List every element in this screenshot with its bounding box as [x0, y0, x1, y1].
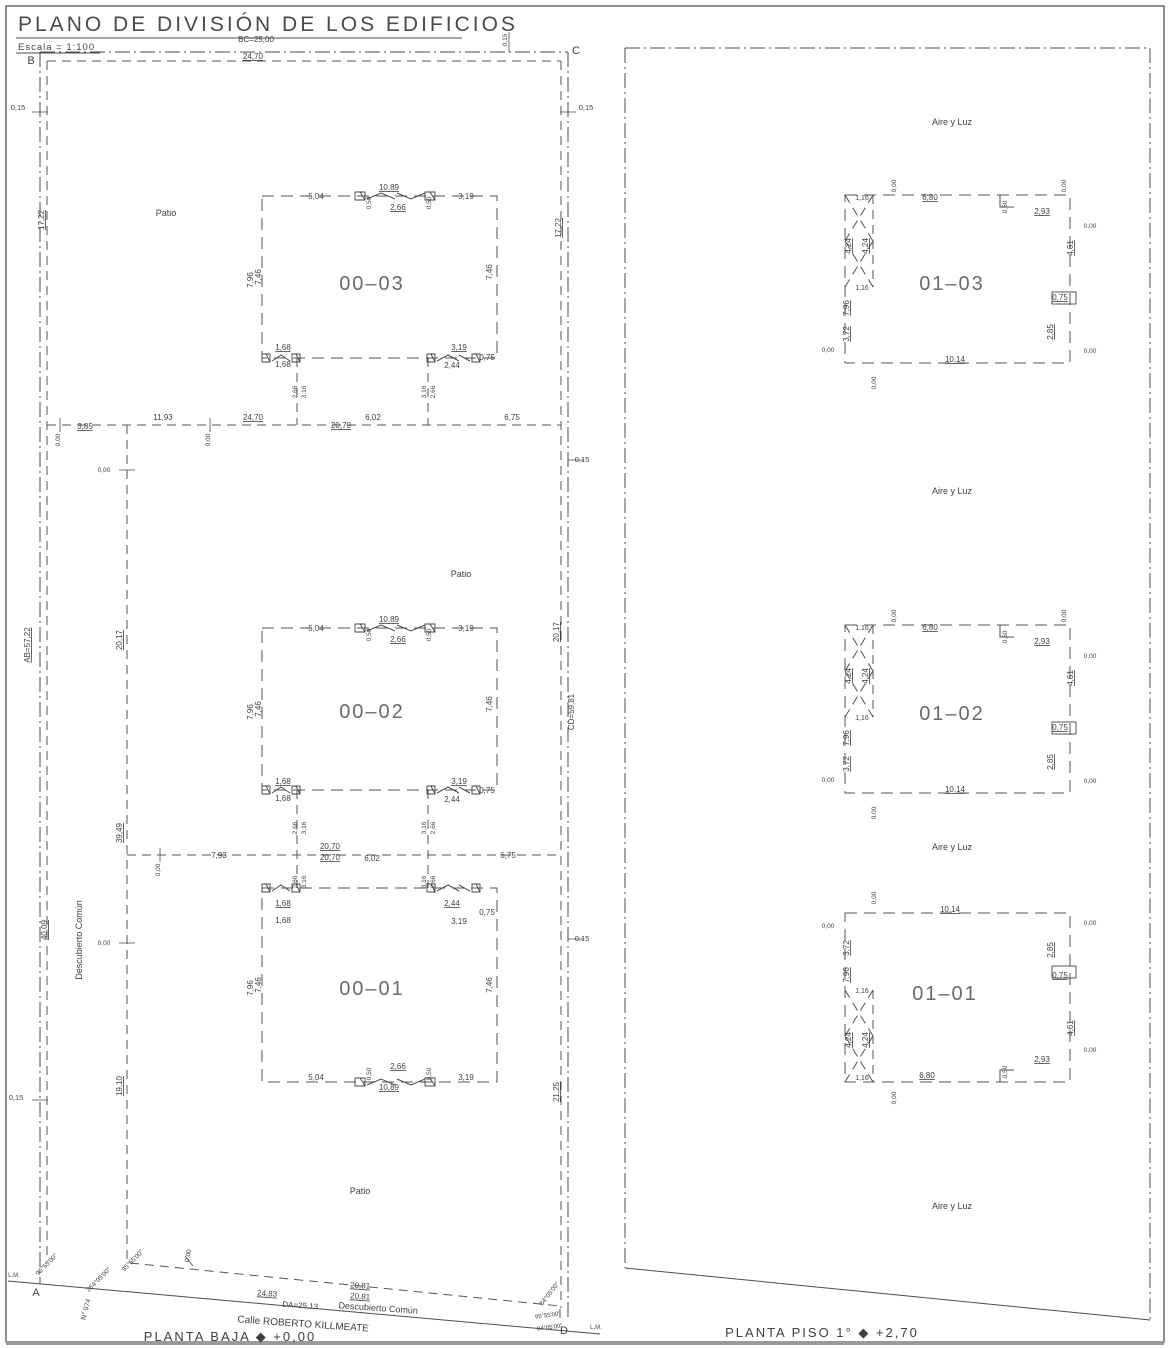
dim-label: 17,22 — [37, 209, 46, 230]
dim-label: 20,17 — [552, 621, 561, 642]
dim-label: 4,24 — [861, 668, 870, 684]
ground-floor-interior-lines — [47, 358, 561, 1318]
dim-label: 0,50 — [366, 628, 373, 641]
dim-label: 4,24 — [844, 668, 853, 684]
dim-label: 0,15 — [575, 455, 590, 464]
dim-label: 10,14 — [945, 355, 966, 364]
dim-label: 21,25 — [552, 1081, 561, 1102]
dim-label: 6,80 — [922, 193, 938, 202]
dim-label: 2,44 — [444, 361, 460, 370]
dim-label: 2,66 — [430, 821, 437, 834]
area-descubierto-comun-2: Descubierto Común — [338, 1300, 418, 1316]
area-descubierto-comun: Descubierto Común — [74, 900, 84, 980]
dim-label: 10,89 — [379, 183, 400, 192]
dim-label: 0,50 — [366, 196, 373, 209]
dim-label: 17,22 — [554, 217, 563, 238]
dim-label: 0,00 — [891, 1091, 898, 1104]
dim-label: 0,00 — [184, 1249, 193, 1263]
street-number: N° 974 — [79, 1298, 92, 1321]
dim-label: 1,16 — [855, 195, 869, 202]
dim-label: 6,75 — [500, 851, 516, 860]
annotation-labels: BCADL.M.L.M.BC=25,0024,700,150,1517,22AB… — [8, 33, 1097, 1337]
lm-right: L.M. — [590, 1325, 602, 1331]
area-patio-3: Patio — [350, 1186, 371, 1196]
dim-label: 0,00 — [822, 923, 835, 930]
dim-label: 0,00 — [1084, 223, 1097, 230]
dim-label: 0,00 — [1084, 653, 1097, 660]
dim-label: 0,00 — [891, 609, 898, 622]
area-aire-y-luz-2: Aire y Luz — [932, 486, 973, 496]
dim-label: 7,96 — [842, 730, 851, 746]
dim-label: 2,66 — [390, 635, 406, 644]
unit-label-00-03: 00–03 — [339, 273, 405, 295]
dim-label: 3,72 — [842, 756, 851, 772]
unit-label-01-01: 01–01 — [912, 983, 978, 1005]
dim-label: 2,85 — [1046, 324, 1055, 340]
dim-label: 2,93 — [1034, 637, 1050, 646]
dim-label: 2,85 — [1046, 942, 1055, 958]
dim-label: 4,61 — [1066, 1020, 1075, 1036]
dim-label: 0,00 — [1084, 920, 1097, 927]
dim-label: 2,44 — [444, 899, 460, 908]
dim-label: 0,00 — [891, 179, 898, 192]
dim-label: 5,04 — [308, 624, 324, 633]
unit-label-00-01: 00–01 — [339, 978, 405, 1000]
dim-label: 7,96 — [842, 300, 851, 316]
dim-label: 95°55'00" — [34, 1251, 60, 1277]
dim-label: 3,19 — [451, 917, 467, 926]
corner-c: C — [572, 45, 580, 57]
dim-label: 0,75 — [479, 908, 495, 917]
dim-label: 3,16 — [421, 385, 428, 398]
dim-label: 84°05'00" — [538, 1280, 562, 1307]
dim-label: 0,00 — [98, 940, 111, 947]
corner-a: A — [32, 1287, 40, 1299]
dim-label: 5,04 — [308, 192, 324, 201]
dim-label: 7,96 — [842, 967, 851, 983]
dim-bc: BC=25,00 — [238, 35, 274, 44]
dim-label: 20,70 — [331, 421, 352, 430]
area-patio-2: Patio — [451, 569, 472, 579]
dim-label: 1,68 — [275, 360, 291, 369]
drawing-sheet: PLANO DE DIVISIÓN DE LOS EDIFICIOS Escal… — [0, 0, 1170, 1348]
dim-label: 20,70 — [320, 842, 341, 851]
dim-label: 0,15 — [579, 103, 594, 112]
dim-label: 0,00 — [871, 376, 878, 389]
dim-label: 0,15 — [575, 934, 590, 943]
dim-label: 0,00 — [1084, 1047, 1097, 1054]
page-title: PLANO DE DIVISIÓN DE LOS EDIFICIOS — [18, 13, 518, 36]
dim-label: 2,85 — [1046, 754, 1055, 770]
dim-label: 0,00 — [205, 433, 212, 446]
dim-label: 0,50 — [426, 628, 433, 641]
dim-label: 7,46 — [254, 977, 263, 993]
area-aire-y-luz-1: Aire y Luz — [932, 117, 973, 127]
dim-label: 3,16 — [301, 875, 308, 888]
dim-label: 0,00 — [1061, 179, 1068, 192]
dim-label: 20,70 — [320, 853, 341, 862]
dim-label: 0,00 — [55, 433, 62, 446]
dim-label: 24,70 — [243, 413, 264, 422]
dim-label: 1,68 — [275, 343, 291, 352]
dim-label: 3,16 — [421, 875, 428, 888]
dim-label: 4,24 — [844, 1032, 853, 1048]
dim-label: 19,10 — [115, 1075, 124, 1096]
dim-label: 39,49 — [115, 822, 124, 843]
dim-label: 10,89 — [379, 1083, 400, 1092]
dim-label: 6,80 — [922, 623, 938, 632]
dim-label: 0,00 — [822, 347, 835, 354]
dim-label: 3,19 — [451, 777, 467, 786]
unit-label-01-02: 01–02 — [919, 703, 985, 725]
dim-label: 95°55'00" — [120, 1247, 146, 1273]
dim-label: 1,16 — [855, 1075, 869, 1082]
dim-label: 1,16 — [855, 625, 869, 632]
dim-label: 4,24 — [844, 238, 853, 254]
dim-label: 0,50 — [426, 1067, 433, 1080]
dim-label: 2,93 — [1034, 1055, 1050, 1064]
dim-label: 2,66 — [390, 1062, 406, 1071]
dim-label: 1,16 — [855, 285, 869, 292]
sheet-frame — [6, 6, 1164, 1342]
lm-left: L.M. — [8, 1273, 20, 1279]
dim-label: 3,72 — [842, 326, 851, 342]
area-aire-y-luz-3: Aire y Luz — [932, 842, 973, 852]
dim-label: 3,16 — [301, 821, 308, 834]
dim-label: 3,85 — [77, 422, 93, 431]
dim-label: 4,24 — [861, 1032, 870, 1048]
caption-planta-piso-1: PLANTA PISO 1° ◆ +2,70 — [725, 1325, 919, 1340]
dim-label: 4,61 — [1066, 670, 1075, 686]
corner-b: B — [27, 55, 34, 67]
dim-label: 2,66 — [430, 385, 437, 398]
dim-label: 0,00 — [1084, 778, 1097, 785]
dim-label: 0,00 — [155, 863, 162, 876]
dim-label: 0,50 — [1002, 630, 1009, 643]
dim-label: 2,66 — [292, 385, 299, 398]
dim-label: 0,15 — [502, 33, 509, 46]
dim-label: 6,02 — [365, 413, 381, 422]
dim-label: 20,81 — [350, 1280, 371, 1290]
dim-label: 0,00 — [98, 467, 111, 474]
unit-label-00-02: 00–02 — [339, 701, 405, 723]
dim-label: 20,17 — [115, 629, 124, 650]
dim-label: 7,46 — [485, 264, 494, 280]
dim-label: 0,00 — [822, 777, 835, 784]
dim-label: 20,81 — [350, 1291, 371, 1301]
dim-label: 10,89 — [379, 615, 400, 624]
dim-label: 3,19 — [451, 343, 467, 352]
dim-label: 5,04 — [308, 1073, 324, 1082]
dim-label: 4,24 — [861, 238, 870, 254]
dim-label: 2,44 — [444, 795, 460, 804]
dim-label: 6,80 — [919, 1071, 935, 1080]
ground-floor-lot-boundary — [40, 52, 568, 1320]
dim-label: 3,72 — [842, 940, 851, 956]
dim-label: 7,46 — [485, 977, 494, 993]
dim-label: 0,00 — [1061, 609, 1068, 622]
dim-label: 0,75 — [1052, 723, 1068, 732]
dim-label: 6,75 — [504, 413, 520, 422]
dim-label: 24,83 — [257, 1288, 278, 1298]
dim-label: 10,14 — [940, 905, 961, 914]
dim-label: 1,68 — [275, 899, 291, 908]
dim-label: 0,00 — [1084, 348, 1097, 355]
dim-label: 24,70 — [243, 52, 264, 61]
dim-label: 2,66 — [390, 203, 406, 212]
plan-svg: PLANO DE DIVISIÓN DE LOS EDIFICIOS Escal… — [0, 0, 1170, 1348]
dim-label: 0,50 — [426, 196, 433, 209]
dim-label: 0,75 — [479, 353, 495, 362]
dim-label: 0,50 — [1002, 1065, 1009, 1078]
dim-label: 3,16 — [421, 821, 428, 834]
area-aire-y-luz-4: Aire y Luz — [932, 1201, 973, 1211]
dim-label: 1,68 — [275, 777, 291, 786]
dim-label: 1,16 — [855, 988, 869, 995]
dim-label: 1,68 — [275, 794, 291, 803]
dim-label: 0,75 — [1052, 971, 1068, 980]
area-patio-1: Patio — [156, 208, 177, 218]
dim-label: 10,14 — [945, 785, 966, 794]
dim-label: 0,15 — [11, 103, 26, 112]
dim-label: 3,19 — [458, 1073, 474, 1082]
dim-label: 0,75 — [479, 786, 495, 795]
dim-label: 2,66 — [292, 821, 299, 834]
dim-label: 2,66 — [292, 875, 299, 888]
dim-label: 1,68 — [275, 916, 291, 925]
dim-label: 2,66 — [430, 875, 437, 888]
dim-label: 95°55'00" — [535, 1311, 561, 1321]
dim-label: 1,16 — [855, 715, 869, 722]
scale-label: Escala = 1:100 — [18, 42, 95, 53]
dim-label: 11,93 — [153, 413, 173, 422]
dim-label: 3,16 — [301, 385, 308, 398]
dim-label: 4,61 — [1066, 240, 1075, 256]
dim-label: 0,00 — [871, 891, 878, 904]
dim-label: 7,46 — [254, 269, 263, 285]
caption-planta-baja: PLANTA BAJA ◆ +0,00 — [144, 1329, 316, 1344]
dim-label: 0,75 — [1052, 293, 1068, 302]
dim-label: 7,46 — [485, 696, 494, 712]
dim-label: 0,50 — [1002, 200, 1009, 213]
dim-label: 7,46 — [254, 701, 263, 717]
dim-label: 3,19 — [458, 192, 474, 201]
dim-cd: CD=59,81 — [567, 693, 576, 730]
dim-label: 0,15 — [9, 1093, 24, 1102]
dim-label: 0,00 — [871, 806, 878, 819]
dim-ab: AB=57,22 — [23, 627, 32, 663]
dim-label: 0,50 — [366, 1067, 373, 1080]
dim-label: 6,02 — [364, 854, 380, 863]
dim-label: 2,93 — [1034, 207, 1050, 216]
dim-label: 7,93 — [211, 851, 227, 860]
unit-label-01-03: 01–03 — [919, 273, 985, 295]
dim-label: 40,09 — [40, 919, 49, 940]
dim-label: 3,19 — [458, 624, 474, 633]
dim-da: DA=25,13 — [282, 1300, 319, 1312]
